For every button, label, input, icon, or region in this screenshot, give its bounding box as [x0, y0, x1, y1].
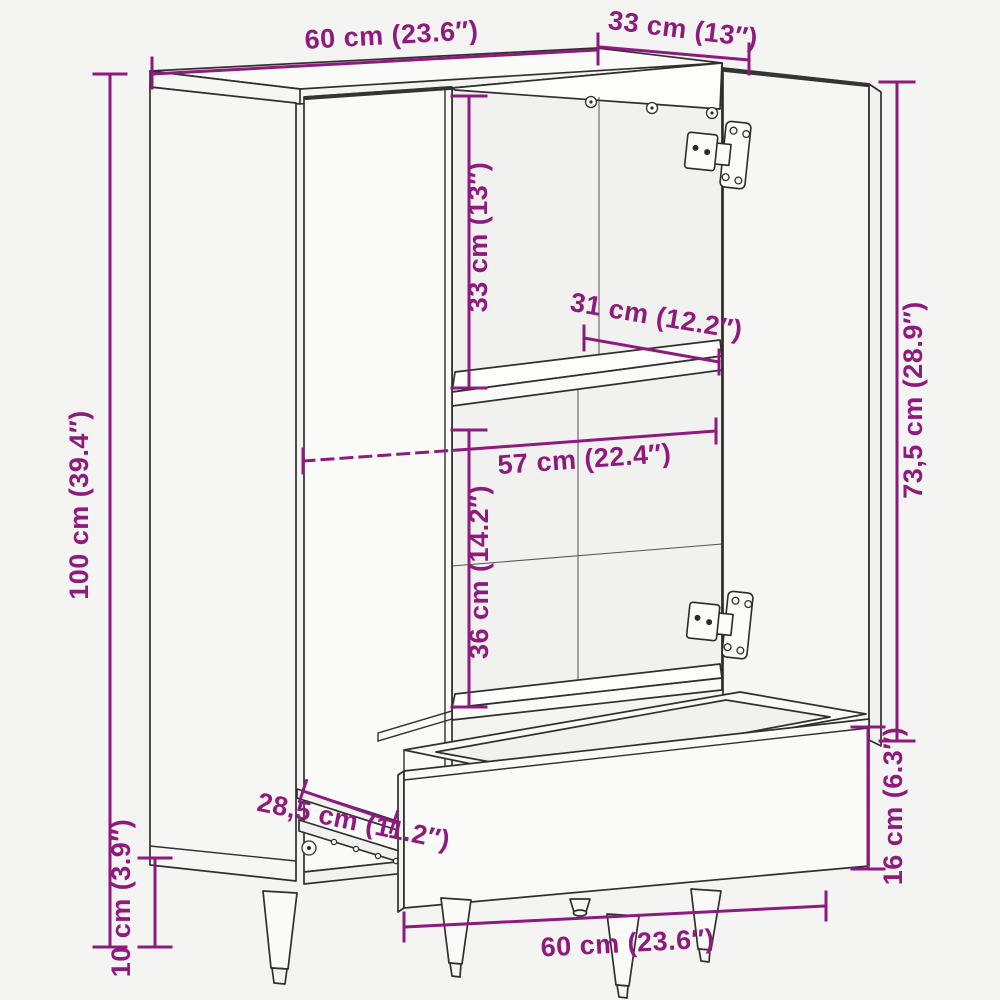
- dim-door-height: 73,5 cm (28.9″): [880, 82, 928, 741]
- leg-cone: [441, 898, 471, 964]
- dim-label: 60 cm (23.6″): [304, 15, 479, 55]
- leg-foot-cap: [450, 963, 461, 977]
- dim-label: 60 cm (23.6″): [540, 923, 715, 962]
- diagram-canvas: 60 cm (23.6″) 33 cm (13″) 100 cm (39.4″)…: [0, 0, 1000, 1000]
- left-side-panel: [150, 87, 296, 881]
- leg-front-middle: [441, 898, 471, 977]
- cabinet-drawing: [150, 48, 881, 998]
- hinge-screw: [730, 127, 737, 134]
- leg-foot-cap: [617, 985, 628, 998]
- rail-hole: [331, 839, 336, 844]
- hinge-screw: [722, 173, 729, 180]
- screw-center: [650, 106, 653, 109]
- hinge-screw: [743, 130, 750, 137]
- hinge-screw: [737, 647, 744, 654]
- dim-label: 10 cm (3.9″): [106, 819, 136, 978]
- hinge-screw: [724, 643, 731, 650]
- hinge-screw: [745, 600, 752, 607]
- dim-label: 73,5 cm (28.9″): [898, 301, 928, 499]
- drawer-center-foot-cap: [574, 910, 587, 916]
- screw-center: [710, 111, 713, 114]
- dim-label: 100 cm (39.4″): [64, 410, 94, 600]
- rail-roller-axle: [307, 846, 311, 850]
- leg-cone: [263, 891, 297, 969]
- dim-label: 33 cm (13″): [463, 162, 493, 313]
- left-door-open: [304, 87, 452, 884]
- hinge-cup: [684, 132, 718, 171]
- dim-label: 16 cm (6.3″): [878, 727, 908, 886]
- screw-center: [589, 100, 592, 103]
- dim-label: 33 cm (13″): [607, 5, 760, 53]
- right-door-edge: [869, 84, 881, 746]
- hinge-screw: [735, 177, 742, 184]
- dim-label: 36 cm (14.2″): [464, 485, 494, 659]
- rail-hole: [375, 853, 380, 858]
- leg-front-left: [263, 891, 297, 984]
- furniture-dimension-diagram: 60 cm (23.6″) 33 cm (13″) 100 cm (39.4″)…: [0, 0, 1000, 1000]
- rail-hole: [353, 846, 358, 851]
- dim-overall-height: 100 cm (39.4″): [64, 74, 126, 947]
- hinge-screw: [732, 597, 739, 604]
- leg-foot-cap: [272, 968, 287, 984]
- hinge-cup: [686, 602, 720, 641]
